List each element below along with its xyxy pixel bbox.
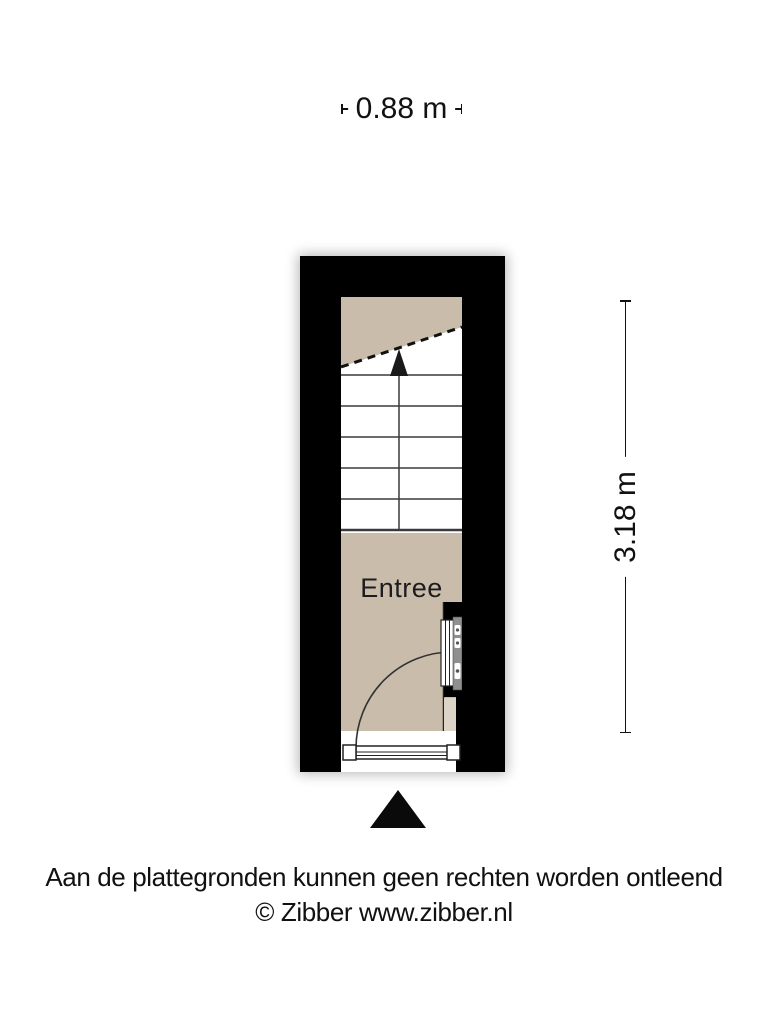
floorplan-page: 0.88 m 3.18 m	[0, 0, 768, 1024]
niche-floor	[444, 698, 456, 731]
footer: Aan de plattegronden kunnen geen rechten…	[0, 860, 768, 930]
radiator-panel-icon	[441, 617, 462, 690]
height-dimension: 3.18 m	[619, 300, 632, 733]
dimension-tick-top	[620, 300, 631, 302]
stairs-up-arrow-icon	[390, 349, 408, 376]
door-jamb-right	[447, 745, 460, 760]
dimension-tick-left	[341, 104, 343, 114]
height-dimension-label: 3.18 m	[611, 457, 641, 577]
dimension-tick-bottom	[620, 732, 631, 734]
width-dimension-label: 0.88 m	[348, 94, 456, 124]
floorplan-drawing	[341, 297, 462, 772]
front-door	[343, 745, 460, 760]
entrance-up-triangle-icon	[370, 790, 426, 828]
floorplan: Entree	[300, 256, 505, 772]
room-label-entree: Entree	[341, 573, 462, 603]
dimension-tick-right	[461, 104, 463, 114]
copyright-text: © Zibber www.zibber.nl	[0, 895, 768, 930]
width-dimension: 0.88 m	[341, 96, 462, 122]
disclaimer-text: Aan de plattegronden kunnen geen rechten…	[0, 860, 768, 895]
stair-treads	[341, 375, 462, 530]
floorplan-interior: Entree	[341, 297, 462, 772]
door-jamb-left	[343, 745, 356, 760]
